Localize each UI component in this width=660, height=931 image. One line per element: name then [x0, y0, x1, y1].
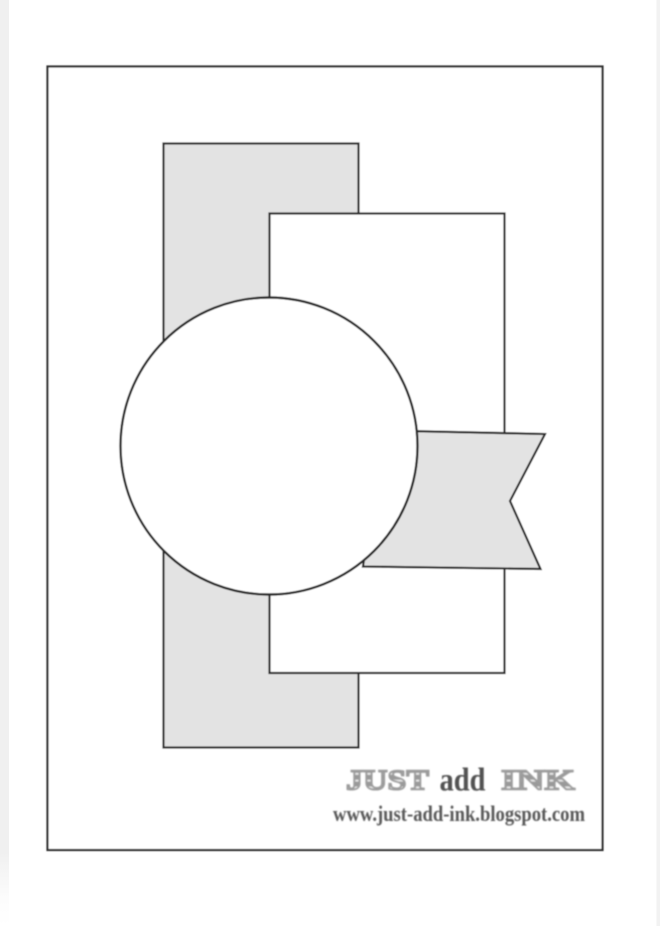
svg-text:JUST: JUST [346, 766, 429, 797]
svg-text:add: add [440, 763, 486, 799]
svg-text:INK: INK [501, 766, 575, 797]
svg-text:www.just-add-ink.blogspot.com: www.just-add-ink.blogspot.com [333, 801, 585, 826]
